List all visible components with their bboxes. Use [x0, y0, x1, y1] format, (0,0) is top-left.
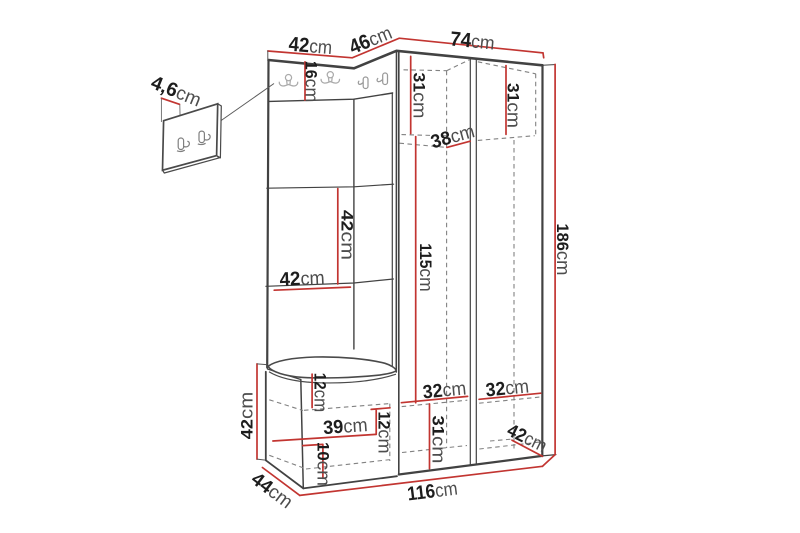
svg-text:10cm: 10cm — [313, 442, 334, 486]
svg-text:42cm: 42cm — [279, 267, 325, 291]
svg-text:31cm: 31cm — [428, 416, 449, 464]
svg-text:115cm: 115cm — [416, 243, 437, 292]
svg-text:42cm: 42cm — [338, 210, 359, 260]
svg-text:32cm: 32cm — [485, 376, 530, 401]
svg-text:12cm: 12cm — [374, 412, 395, 454]
svg-text:16cm: 16cm — [301, 61, 322, 102]
svg-text:39cm: 39cm — [322, 415, 368, 439]
svg-text:42cm: 42cm — [288, 33, 333, 59]
svg-text:32cm: 32cm — [422, 378, 467, 403]
svg-text:31cm: 31cm — [504, 83, 525, 128]
svg-text:186cm: 186cm — [553, 224, 574, 276]
svg-text:12cm: 12cm — [310, 373, 331, 412]
svg-text:31cm: 31cm — [409, 73, 430, 119]
svg-text:42cm: 42cm — [236, 392, 257, 440]
